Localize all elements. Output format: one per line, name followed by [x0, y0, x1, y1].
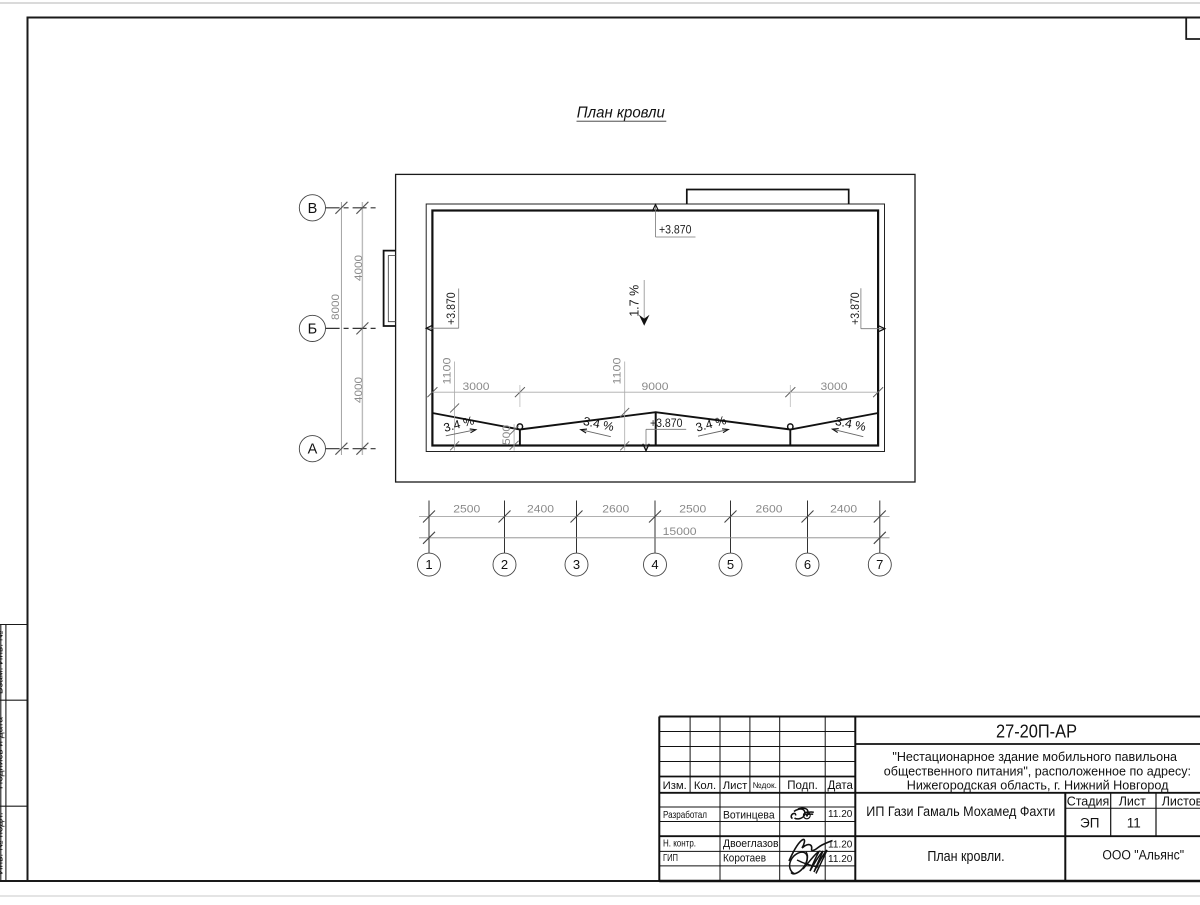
- svg-text:Взам. Инв. №: Взам. Инв. №: [0, 630, 5, 694]
- svg-text:ЭП: ЭП: [1080, 816, 1099, 831]
- svg-text:6: 6: [804, 557, 811, 572]
- svg-text:Подпись и дата: Подпись и дата: [0, 717, 5, 789]
- svg-text:3000: 3000: [463, 381, 490, 393]
- svg-text:Н. контр.: Н. контр.: [663, 839, 696, 850]
- svg-text:9000: 9000: [642, 381, 669, 393]
- svg-text:Подп.: Подп.: [787, 780, 818, 792]
- svg-text:27-20П-АР: 27-20П-АР: [996, 722, 1077, 742]
- svg-text:1100: 1100: [611, 358, 623, 385]
- svg-text:11: 11: [1127, 816, 1141, 831]
- svg-text:План кровли.: План кровли.: [927, 849, 1004, 865]
- svg-text:ГИП: ГИП: [663, 853, 678, 864]
- svg-text:План кровли: План кровли: [577, 105, 665, 122]
- svg-text:2500: 2500: [679, 504, 706, 516]
- svg-text:2600: 2600: [756, 504, 783, 516]
- svg-text:ООО "Альянс": ООО "Альянс": [1102, 848, 1184, 863]
- svg-text:3000: 3000: [821, 381, 848, 393]
- svg-text:Дата: Дата: [827, 780, 853, 792]
- svg-text:Стадия: Стадия: [1067, 795, 1110, 809]
- svg-text:Разработал: Разработал: [663, 809, 707, 821]
- svg-text:Кол.: Кол.: [694, 780, 716, 792]
- svg-text:2400: 2400: [830, 504, 857, 516]
- svg-text:Изм.: Изм.: [663, 780, 687, 792]
- svg-text:4000: 4000: [353, 377, 365, 403]
- svg-text:ИП Гази Гамаль Мохамед Фахти: ИП Гази Гамаль Мохамед Фахти: [866, 804, 1055, 819]
- svg-text:+3.870: +3.870: [850, 292, 862, 325]
- svg-text:общественного питания", распол: общественного питания", расположенное по…: [884, 764, 1191, 779]
- svg-text:Двоеглазов: Двоеглазов: [723, 838, 779, 850]
- svg-text:2600: 2600: [602, 504, 629, 516]
- svg-text:4: 4: [651, 557, 658, 572]
- svg-text:Лист: Лист: [723, 780, 748, 792]
- svg-text:Лист: Лист: [1119, 795, 1146, 809]
- svg-text:Коротаев: Коротаев: [723, 853, 766, 865]
- svg-text:7: 7: [876, 557, 883, 572]
- svg-text:Нижегородская область, г. Нижн: Нижегородская область, г. Нижний Новгоро…: [907, 778, 1169, 793]
- svg-text:В: В: [308, 201, 318, 217]
- svg-text:Вотинцева: Вотинцева: [723, 809, 775, 821]
- svg-text:+3.870: +3.870: [446, 292, 458, 325]
- svg-text:5: 5: [727, 557, 734, 572]
- svg-text:11.20: 11.20: [828, 809, 853, 820]
- svg-text:1: 1: [425, 557, 432, 572]
- svg-text:+3.870: +3.870: [659, 224, 692, 236]
- svg-text:2500: 2500: [453, 504, 480, 516]
- svg-text:2400: 2400: [527, 504, 554, 516]
- svg-text:4000: 4000: [353, 255, 365, 281]
- svg-text:№док.: №док.: [753, 780, 777, 790]
- svg-text:+3.870: +3.870: [650, 418, 683, 430]
- svg-text:11.20: 11.20: [828, 854, 853, 865]
- svg-text:15000: 15000: [663, 526, 697, 538]
- svg-text:3: 3: [573, 557, 580, 572]
- svg-text:8000: 8000: [330, 294, 342, 320]
- svg-text:2: 2: [501, 557, 508, 572]
- svg-text:1.7 %: 1.7 %: [627, 285, 641, 317]
- svg-text:500: 500: [501, 425, 513, 445]
- svg-text:Инв. № подл.: Инв. № подл.: [0, 812, 5, 874]
- svg-text:А: А: [308, 442, 318, 458]
- svg-text:Листов: Листов: [1162, 795, 1200, 809]
- svg-text:1100: 1100: [441, 358, 453, 385]
- svg-text:"Нестационарное здание мобильн: "Нестационарное здание мобильного павиль…: [892, 749, 1177, 764]
- svg-text:Б: Б: [308, 321, 318, 337]
